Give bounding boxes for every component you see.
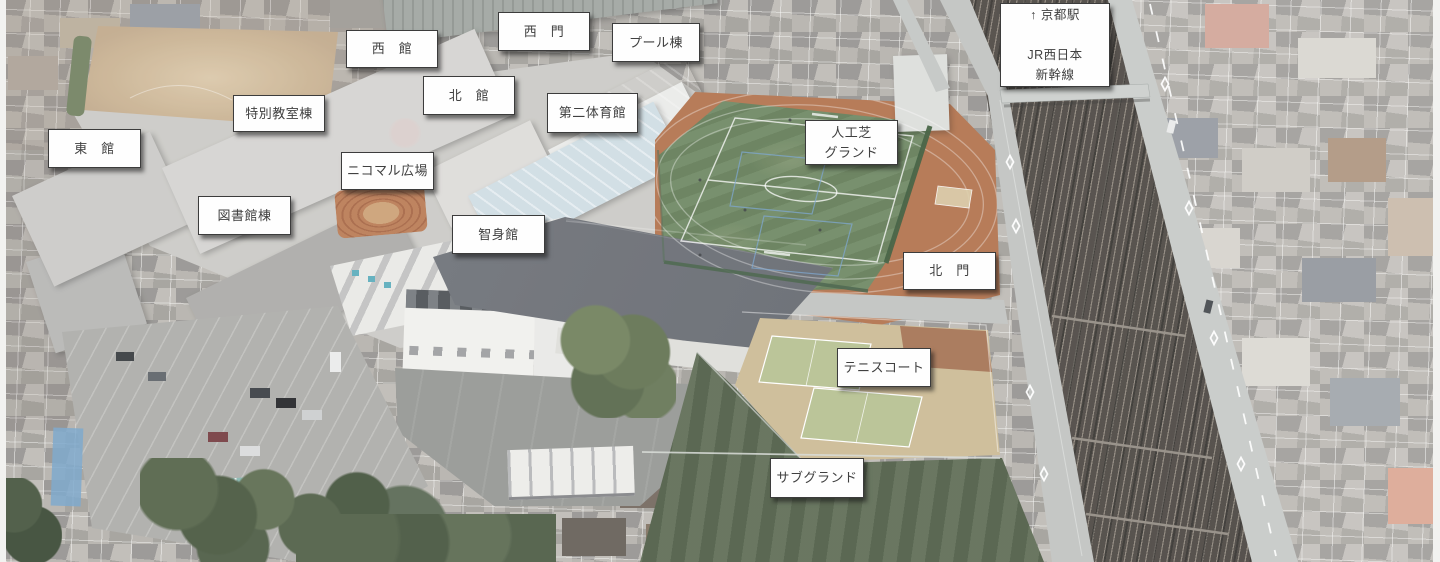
long-jump-pit	[935, 186, 972, 208]
label-north-gate: 北 門	[903, 252, 996, 290]
label-second-gymnasium: 第二体育館	[547, 93, 638, 133]
roof-ridge-line	[566, 219, 833, 268]
label-north-building: 北 館	[423, 76, 515, 115]
dirt-field-arc	[130, 85, 232, 100]
label-library-building: 図書館棟	[198, 196, 291, 235]
page-margin-left	[0, 0, 6, 562]
label-special-classroom-building: 特別教室棟	[233, 95, 325, 132]
label-pool-building: プール棟	[612, 23, 700, 62]
top-street	[893, 0, 950, 92]
field-markings-svg	[0, 0, 1440, 562]
label-kyoto-station-direction: ↑ 京都駅 JR西日本 新幹線	[1000, 3, 1110, 87]
page-margin-right	[1433, 0, 1440, 562]
pedestrian-bridge	[1000, 84, 1150, 106]
diamond-markings	[1007, 78, 1245, 481]
road-vehicles	[1166, 119, 1213, 313]
railway-gantries	[1004, 42, 1228, 534]
label-east-building: 東 館	[48, 129, 141, 168]
label-west-gate: 西 門	[498, 12, 590, 51]
label-artificial-turf-ground: 人工芝 グランド	[805, 120, 898, 165]
label-nicomaru-plaza: ニコマル広場	[341, 152, 434, 190]
label-chishinkan: 智身館	[452, 215, 545, 254]
label-west-building: 西 館	[346, 30, 438, 68]
aerial-photo: 西 館 西 門 プール棟 北 館 特別教室棟 第二体育館 東 館 人工芝 グラン…	[0, 0, 1440, 562]
label-sub-ground: サブグランド	[770, 458, 864, 498]
label-tennis-court: テニスコート	[837, 348, 931, 387]
campus-map: 西 館 西 門 プール棟 北 館 特別教室棟 第二体育館 東 館 人工芝 グラン…	[0, 0, 1440, 562]
